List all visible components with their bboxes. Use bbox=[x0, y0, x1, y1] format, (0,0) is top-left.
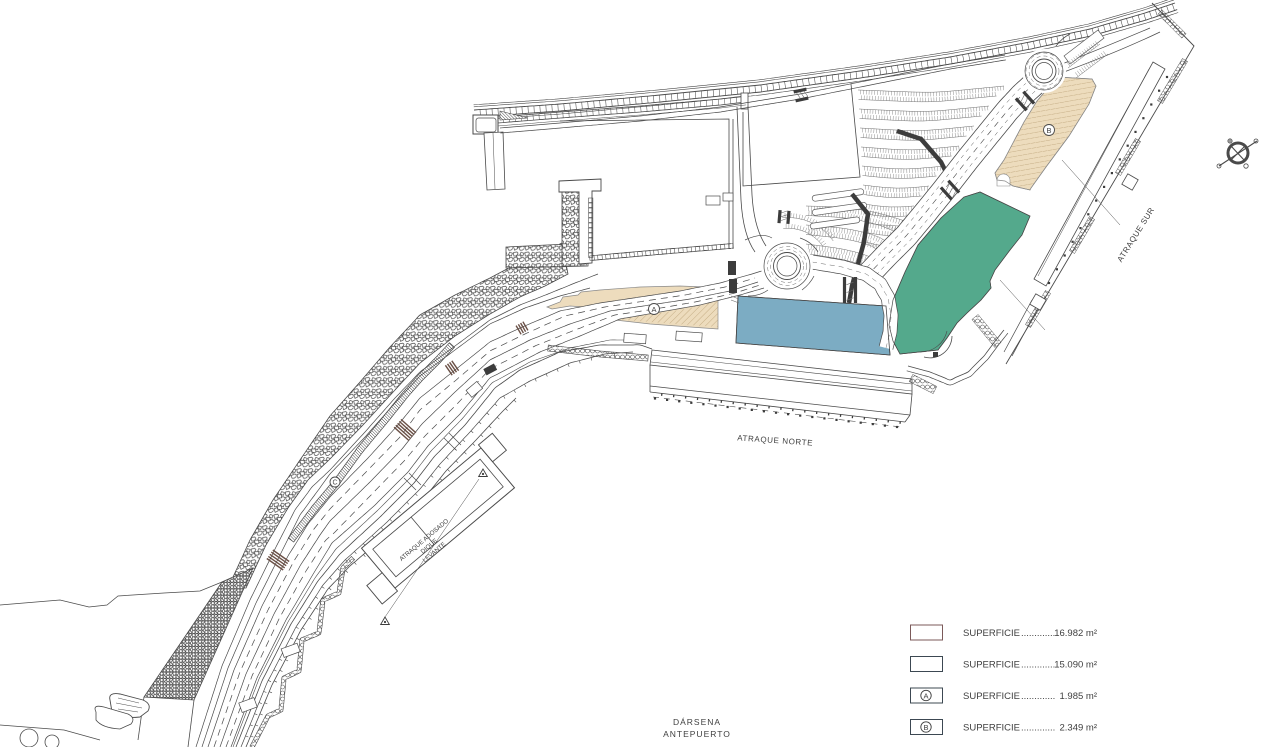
svg-text:.............: ............. bbox=[1021, 628, 1055, 639]
svg-text:DÁRSENA: DÁRSENA bbox=[673, 717, 721, 727]
svg-text:16.982 m²: 16.982 m² bbox=[1054, 628, 1097, 639]
svg-text:15.090 m²: 15.090 m² bbox=[1054, 660, 1097, 671]
svg-text:C: C bbox=[332, 480, 337, 487]
svg-text:A: A bbox=[923, 691, 928, 700]
svg-text:.............: ............. bbox=[1021, 723, 1055, 734]
svg-text:ANTEPUERTO: ANTEPUERTO bbox=[663, 729, 731, 739]
svg-text:SUPERFICIE: SUPERFICIE bbox=[963, 660, 1020, 671]
svg-text:SUPERFICIE: SUPERFICIE bbox=[963, 723, 1020, 734]
svg-text:SUPERFICIE: SUPERFICIE bbox=[963, 628, 1020, 639]
svg-text:SUPERFICIE: SUPERFICIE bbox=[963, 691, 1020, 702]
svg-text:.............: ............. bbox=[1021, 660, 1055, 671]
svg-text:B: B bbox=[1046, 126, 1051, 135]
svg-text:1.985 m²: 1.985 m² bbox=[1060, 691, 1098, 702]
svg-text:B: B bbox=[923, 723, 928, 732]
svg-text:.............: ............. bbox=[1021, 691, 1055, 702]
svg-text:2.349 m²: 2.349 m² bbox=[1060, 723, 1098, 734]
svg-text:A: A bbox=[651, 305, 656, 314]
